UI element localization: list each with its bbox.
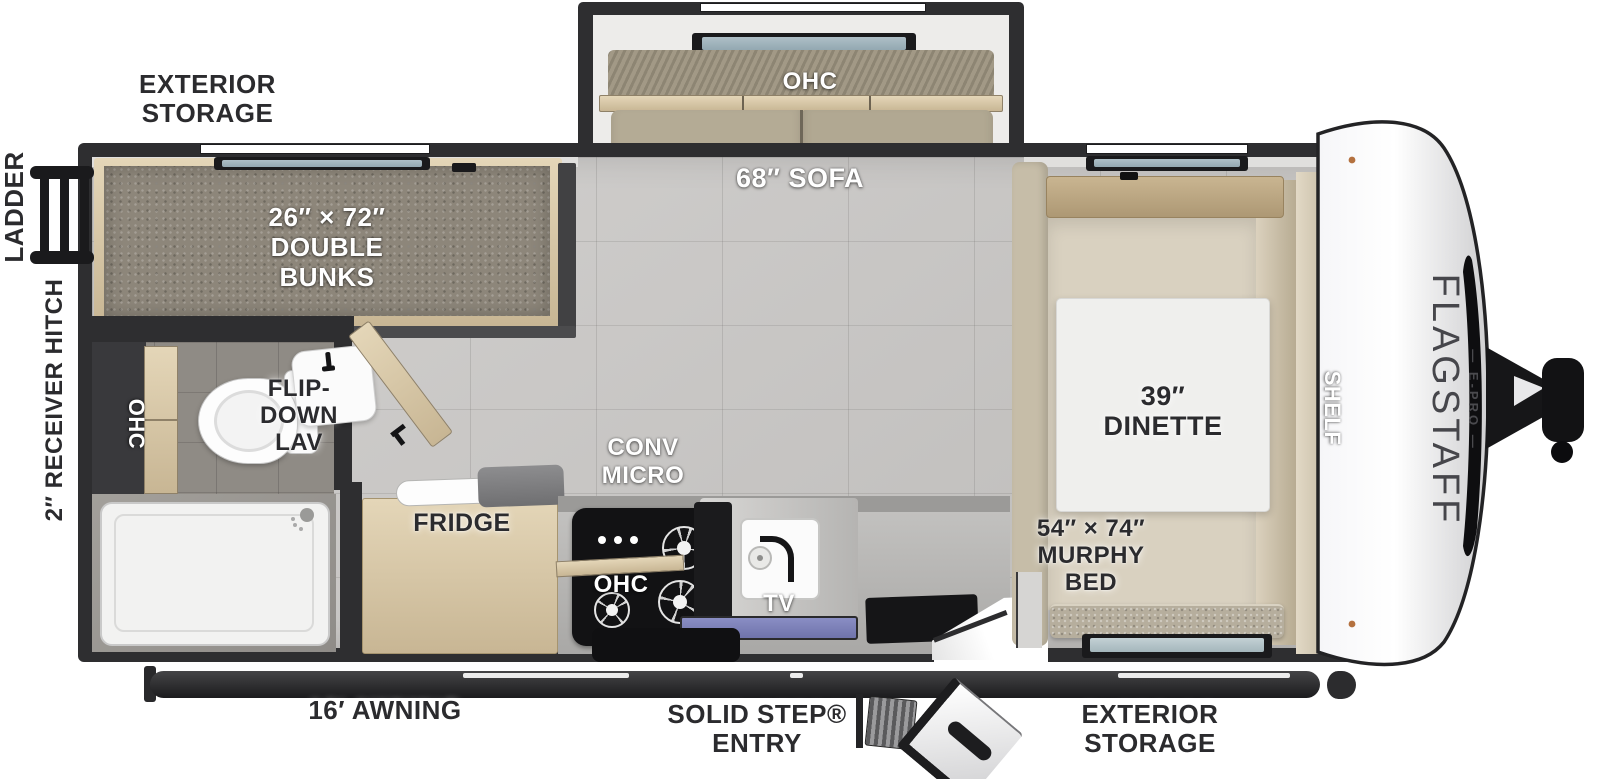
ladder-rung: [60, 170, 69, 260]
burner-center: [606, 604, 618, 616]
slideout-window-glass: [702, 37, 906, 50]
ladder-rung: [80, 170, 89, 260]
burner-center: [677, 541, 691, 555]
burner-center: [673, 595, 687, 609]
label-flip-down-lav: FLIP- DOWN LAV: [229, 376, 369, 457]
shower-head-icon: [300, 508, 314, 522]
murphy-bed-front-bolster: [1050, 604, 1284, 638]
bath-ohc-door-seam: [144, 419, 178, 421]
dinette-exterior-window: [1086, 144, 1248, 154]
brand-logo: — E-PRO — FLAGSTAFF: [1420, 230, 1484, 570]
cap-screw: [1349, 157, 1356, 164]
label-kitchen-ohc: OHC: [581, 571, 661, 599]
label-sofa-ohc: OHC: [770, 68, 850, 96]
bunk-window-glass: [222, 160, 422, 167]
bunk-side-panel: [558, 163, 576, 335]
hitch-coupler: [1542, 358, 1584, 442]
label-awning: 16′ AWNING: [285, 696, 485, 725]
shower-tub-inner: [114, 514, 314, 632]
label-fridge: FRIDGE: [392, 509, 532, 537]
fridge-top-pad: [477, 465, 564, 508]
cooktop-knob: [614, 536, 622, 544]
dinette-window-glass: [1094, 159, 1240, 167]
label-tv: TV: [749, 590, 809, 618]
slideout-top-window: [700, 3, 926, 12]
awning-highlight: [1118, 673, 1290, 678]
label-double-bunks: 26″ × 72″ DOUBLE BUNKS: [227, 202, 427, 292]
label-shelf: SHELF: [1315, 368, 1345, 448]
ladder-graphic: [30, 166, 94, 264]
label-receiver-hitch: 2″ RECEIVER HITCH: [42, 270, 72, 530]
tv-screen: [694, 502, 732, 624]
hitch-ball: [1551, 441, 1573, 463]
label-exterior-storage-bottom: EXTERIOR STORAGE: [1050, 700, 1250, 758]
sofa-ohc-shelf-seam: [742, 96, 744, 111]
under-counter-basin: [592, 628, 740, 662]
label-sofa: 68″ SOFA: [700, 163, 900, 194]
dinette-window-latch: [1120, 172, 1138, 180]
label-conv-micro: CONV MICRO: [573, 434, 713, 490]
bath-wall-lower: [340, 482, 362, 660]
label-murphy-bed: 54″ × 74″ MURPHY BED: [1001, 516, 1181, 597]
label-exterior-storage-top: EXTERIOR STORAGE: [120, 70, 295, 128]
bath-wall-top: [78, 316, 354, 342]
rv-floorplan-diagram: — E-PRO — FLAGSTAFF EXTERIOR STORAGE LAD…: [0, 0, 1600, 779]
murphy-bed-window-glass: [1090, 638, 1264, 652]
awning-highlight: [790, 673, 803, 678]
cooktop-knob: [630, 536, 638, 544]
entry-step-handle-slot: [945, 718, 994, 763]
cooktop-knob: [598, 536, 606, 544]
ladder-rung: [40, 170, 49, 260]
label-bath-ohc: OHC: [119, 384, 149, 464]
dinette-console: [1046, 176, 1284, 218]
bunk-exterior-window: [200, 144, 430, 154]
label-entry: SOLID STEP® ENTRY: [647, 700, 867, 758]
awning-highlight: [463, 673, 629, 678]
brand-name-label: FLAGSTAFF: [1423, 274, 1466, 527]
sofa-ohc-shelf-seam: [869, 96, 871, 111]
label-ladder: LADDER: [0, 107, 30, 307]
brand-sub-label: — E-PRO —: [1466, 349, 1481, 450]
cap-screw: [1349, 621, 1356, 628]
bunk-window-latch: [452, 163, 476, 172]
label-dinette: 39″ DINETTE: [1063, 381, 1263, 441]
awning-end-cap: [1324, 671, 1356, 699]
bunk-shadow: [352, 326, 576, 338]
